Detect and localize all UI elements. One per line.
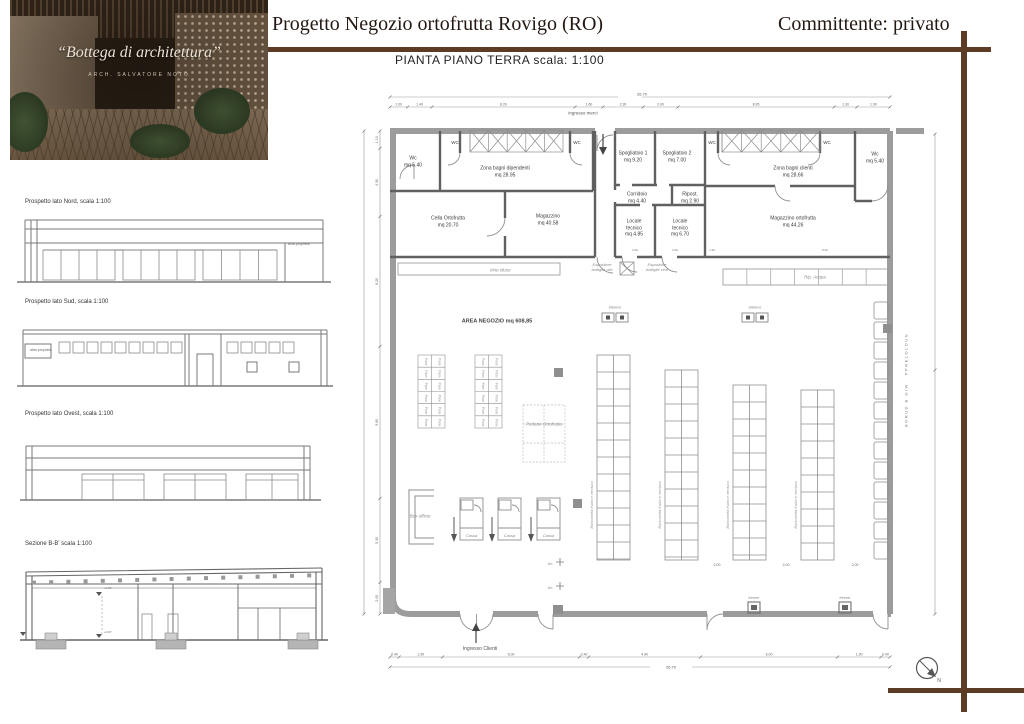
room-magazzino-ortofrutta: Magazzino ortofruttamq 44.26 xyxy=(770,216,816,229)
frame-line-horizontal-bottom xyxy=(888,688,1024,693)
scales-label-2: bilance xyxy=(749,306,762,311)
elevation-north-label: Prospetto lato Nord, scala 1:100 xyxy=(25,199,111,205)
cassa-label: Cassa xyxy=(504,533,516,538)
pane-cell-label: Pane xyxy=(437,383,441,391)
fixtures: 1.001.408.201.602.302.008.951.301.900.40… xyxy=(363,96,938,679)
entry-arrows xyxy=(472,134,607,643)
client-title: Committente: privato xyxy=(778,13,950,36)
generated-texts: CassaCassaCassaBancarella frutta e verdu… xyxy=(424,358,859,567)
cassa-label: Cassa xyxy=(543,533,555,538)
rack-dim: 2.00 xyxy=(783,563,790,567)
dim-bottom: 0.40 xyxy=(391,653,398,657)
pane-cell-label: Pane xyxy=(494,370,498,378)
dim-left: 5.30 xyxy=(375,537,379,544)
bread-racks xyxy=(418,355,502,428)
total-dim-bottom: 26.70 xyxy=(666,666,676,671)
pane-cell-label: Pane xyxy=(424,383,428,391)
dim-top: 1.00 xyxy=(395,103,402,107)
pane-cell-label: Pane xyxy=(437,370,441,378)
room-bagni-clienti: Zona bagni clientimq 28.66 xyxy=(773,166,812,179)
project-sheet: Progetto Negozio ortofrutta Rovigo (RO) … xyxy=(0,0,1024,724)
dim-left: 2.00 xyxy=(375,595,379,602)
pane-cell-label: Pane xyxy=(481,358,485,366)
room-spogliatoio-1: Spogliatoio 1mq 9.20 xyxy=(619,151,648,164)
dim-top: 1.90 xyxy=(870,103,877,107)
wine-counter xyxy=(398,263,560,275)
wine-display-label: Espositore bottiglie vino xyxy=(646,263,668,273)
dim-bottom: 0.40 xyxy=(581,653,588,657)
dim-top: 2.00 xyxy=(657,103,664,107)
room-wc-small-4: WC xyxy=(823,140,831,146)
goods-entrance-label: ingresso merci xyxy=(568,110,597,115)
dim-left: 1.10 xyxy=(375,136,379,143)
dimension-chains: 1.001.408.201.602.302.008.951.301.900.40… xyxy=(363,96,937,669)
elevation-south-label: Prospetto lato Sud, scala 1:100 xyxy=(25,299,108,305)
dim-bottom: 6.00 xyxy=(508,653,515,657)
room-wc-nw: Wcmq 5.40 xyxy=(404,156,422,169)
pane-cell-label: Pane xyxy=(494,419,498,427)
room-wc-small-2: WC xyxy=(573,140,581,146)
room-locale-tecnico-1: Locale tecnicomq 4.85 xyxy=(625,218,643,238)
north-note: altra proprietà xyxy=(288,242,310,246)
dim-bottom: 1.90 xyxy=(417,653,424,657)
room-spogliatoio-2: Spogliatoio 2mq 7.00 xyxy=(663,151,692,164)
dim-mid: 2.00 xyxy=(672,248,678,252)
dim-mid: 8.00 xyxy=(822,248,828,252)
room-magazzino: Magazzinomq 40.58 xyxy=(536,214,560,227)
dim-top: 8.95 xyxy=(753,103,760,107)
cassa-label: Cassa xyxy=(466,533,478,538)
room-area-negozio: AREA NEGOZIO mq 608,85 xyxy=(462,318,532,325)
section-level-top: +4.07 xyxy=(104,586,112,590)
dim-mid: 2.00 xyxy=(632,248,638,252)
pallet-area xyxy=(523,405,565,462)
dim-top: 1.40 xyxy=(416,103,423,107)
room-bagni-dipendenti: Zona bagni dipendentimq 28.95 xyxy=(480,166,530,179)
pane-cell-label: Pane xyxy=(481,407,485,415)
dim-bottom: 0.40 xyxy=(882,653,889,657)
bottle-display-x xyxy=(620,262,634,275)
room-wc-ne: Wcmq 5.40 xyxy=(866,152,884,165)
freezer-label-1: freezer xyxy=(749,596,760,600)
compass-north-label: N xyxy=(937,678,941,684)
pane-cell-label: Pane xyxy=(424,407,428,415)
right-wall-note: BORUD B GIW · PPRELOLDUN xyxy=(905,333,910,427)
section-level-floor: +0.07 xyxy=(104,630,112,634)
section-bb-drawing xyxy=(18,556,330,656)
water-shelf-label: Rip. Acqua xyxy=(804,274,826,279)
ground-floor-plan: 1.001.408.201.602.302.008.951.301.900.40… xyxy=(350,50,1024,684)
room-cella-ortofrutta: Cella Ortofruttamq 20.70 xyxy=(431,216,465,229)
rack-label: Bancarella frutta e verdura xyxy=(725,481,730,529)
project-title: Progetto Negozio ortofrutta Rovigo (RO) xyxy=(272,13,603,36)
rack-dim: 2.00 xyxy=(714,563,721,567)
pillars xyxy=(383,324,892,614)
display-racks xyxy=(597,302,888,560)
studio-logo-text: “Bottega di architettura” xyxy=(10,44,268,62)
pane-cell-label: Pane xyxy=(437,395,441,403)
oil-display-label: Espositore bottiglie olio xyxy=(591,263,612,273)
dim-left: 4.30 xyxy=(375,179,379,186)
freezer-label-2: freezer xyxy=(840,596,851,600)
pallet-area-label: Pedane Ortofrutta xyxy=(526,421,562,426)
room-wc-small-1: WC xyxy=(451,140,459,146)
dim-top: 2.30 xyxy=(620,103,627,107)
total-dim-top: 26.70 xyxy=(637,93,647,98)
rack-label: Bancarella frutta e verdura xyxy=(589,481,594,529)
scales-icons xyxy=(602,313,768,322)
office-box-label: Box ufficio xyxy=(410,513,431,518)
elevation-west-label: Prospetto lato Ovest, scala 1:100 xyxy=(25,411,113,417)
pane-cell-label: Pane xyxy=(494,383,498,391)
pane-cell-label: Pane xyxy=(424,370,428,378)
scale-marker-1: 2m xyxy=(548,562,553,566)
studio-photo: “Bottega di architettura” ARCH. SALVATOR… xyxy=(10,0,268,160)
pane-cell-label: Pane xyxy=(424,419,428,427)
room-ripostiglio: Ripost.mq 2.90 xyxy=(681,192,699,205)
rack-label: Bancarella frutta e verdura xyxy=(793,481,798,529)
elevation-west-drawing xyxy=(18,438,323,508)
elevation-north-drawing xyxy=(15,212,333,292)
pane-cell-label: Pane xyxy=(481,395,485,403)
dim-top: 8.20 xyxy=(500,103,507,107)
dim-left: 8.20 xyxy=(375,278,379,285)
pane-cell-label: Pane xyxy=(481,383,485,391)
pane-cell-label: Pane xyxy=(494,358,498,366)
photo-shade xyxy=(10,0,268,160)
perimeter-walls xyxy=(390,131,924,614)
pane-cell-label: Pane xyxy=(494,407,498,415)
rack-label: Bancarella frutta e verdura xyxy=(657,481,662,529)
room-locale-tecnico-2: Locale tecnicomq 6.70 xyxy=(671,218,689,238)
pane-cell-label: Pane xyxy=(437,407,441,415)
wine-counter-label: Vino sfuso xyxy=(490,267,511,272)
elevation-south-drawing xyxy=(15,318,335,398)
pane-cell-label: Pane xyxy=(481,370,485,378)
room-corridoio: Corridoiomq 4.40 xyxy=(627,192,647,205)
dim-mid: 1.40 xyxy=(709,248,715,252)
dim-left: 9.60 xyxy=(375,419,379,426)
dim-top: 1.60 xyxy=(586,103,593,107)
dim-bottom: 4.90 xyxy=(641,653,648,657)
dim-top: 1.30 xyxy=(842,103,849,107)
room-wc-small-3: WC xyxy=(708,140,716,146)
rack-dim: 2.00 xyxy=(852,563,859,567)
dim-bottom: 6.00 xyxy=(766,653,773,657)
pane-cell-label: Pane xyxy=(424,395,428,403)
pane-cell-label: Pane xyxy=(437,419,441,427)
customer-entrance-label: Ingresso Clienti xyxy=(463,646,497,652)
south-note: altra proprietà xyxy=(30,348,52,352)
scale-marker-2: 2m xyxy=(548,586,553,590)
pane-cell-label: Pane xyxy=(481,419,485,427)
dim-bottom: 1.90 xyxy=(856,653,863,657)
section-bb-label: Sezione B-B' scala 1:100 xyxy=(25,541,92,547)
pane-cell-label: Pane xyxy=(494,395,498,403)
studio-logo-subtitle: ARCH. SALVATORE NOTO xyxy=(10,72,268,78)
scales-label-1: bilance xyxy=(609,306,622,311)
compass-north-icon xyxy=(917,658,938,679)
door-swings xyxy=(400,135,888,632)
pane-cell-label: Pane xyxy=(424,358,428,366)
pane-cell-label: Pane xyxy=(437,358,441,366)
